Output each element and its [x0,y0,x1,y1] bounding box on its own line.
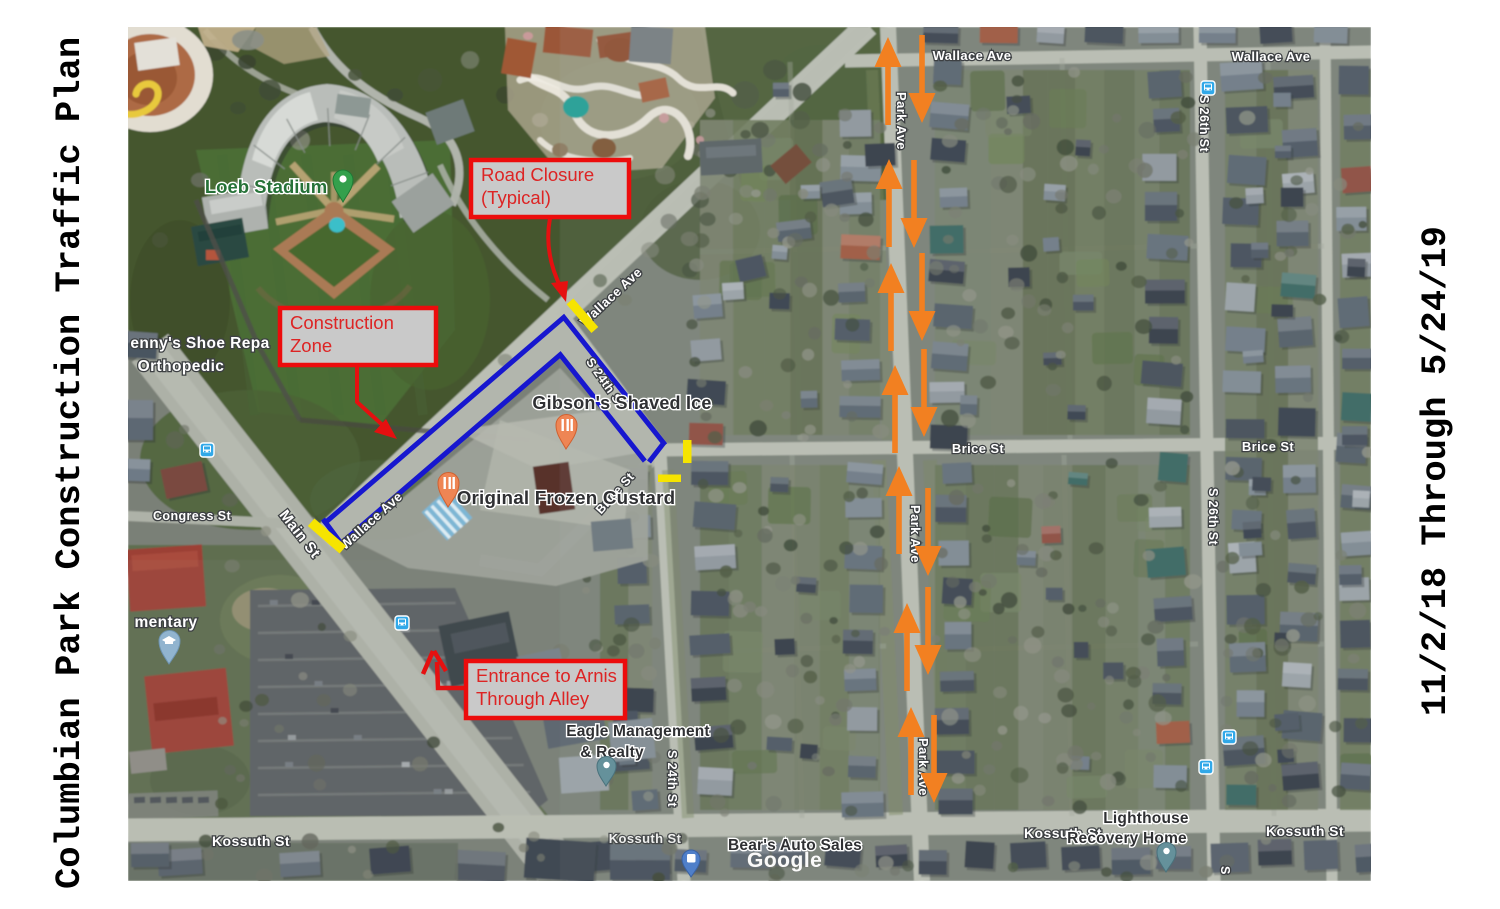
svg-text:Zone: Zone [290,335,332,356]
svg-text:Original Frozen Custard: Original Frozen Custard [457,487,676,508]
svg-text:Lighthouse: Lighthouse [1103,810,1189,827]
svg-text:Gibson's Shaved Ice: Gibson's Shaved Ice [532,393,711,413]
svg-text:Road Closure: Road Closure [481,164,594,185]
svg-text:Congress St: Congress St [153,509,231,523]
svg-text:Loeb Stadium: Loeb Stadium [205,176,327,197]
svg-text:enny's Shoe Repa: enny's Shoe Repa [130,335,269,352]
svg-text:Wallace Ave: Wallace Ave [1232,49,1311,64]
svg-text:S 26th St: S 26th St [1197,95,1211,153]
svg-text:Google: Google [747,849,822,872]
svg-text:Kossuth St: Kossuth St [609,831,682,846]
svg-text:Construction: Construction [290,312,394,333]
svg-text:mentary: mentary [134,614,197,631]
svg-text:Wallace Ave: Wallace Ave [933,48,1012,63]
svg-text:Park Ave: Park Ave [894,92,909,150]
svg-text:Entrance to Arnis: Entrance to Arnis [476,665,617,686]
svg-text:Brice St: Brice St [1242,439,1295,454]
svg-text:(Typical): (Typical) [481,187,551,208]
svg-text:S 24th St: S 24th St [665,750,679,808]
svg-text:Eagle Management: Eagle Management [566,723,710,740]
svg-text:Brice St: Brice St [952,441,1005,456]
svg-text:Through Alley: Through Alley [476,688,590,709]
svg-text:S 26th St: S 26th St [1206,488,1220,546]
svg-text:Kossuth St: Kossuth St [212,833,290,849]
svg-text:Orthopedic: Orthopedic [138,358,225,375]
svg-text:Kossuth St: Kossuth St [1266,823,1344,839]
svg-text:S: S [1218,866,1232,875]
